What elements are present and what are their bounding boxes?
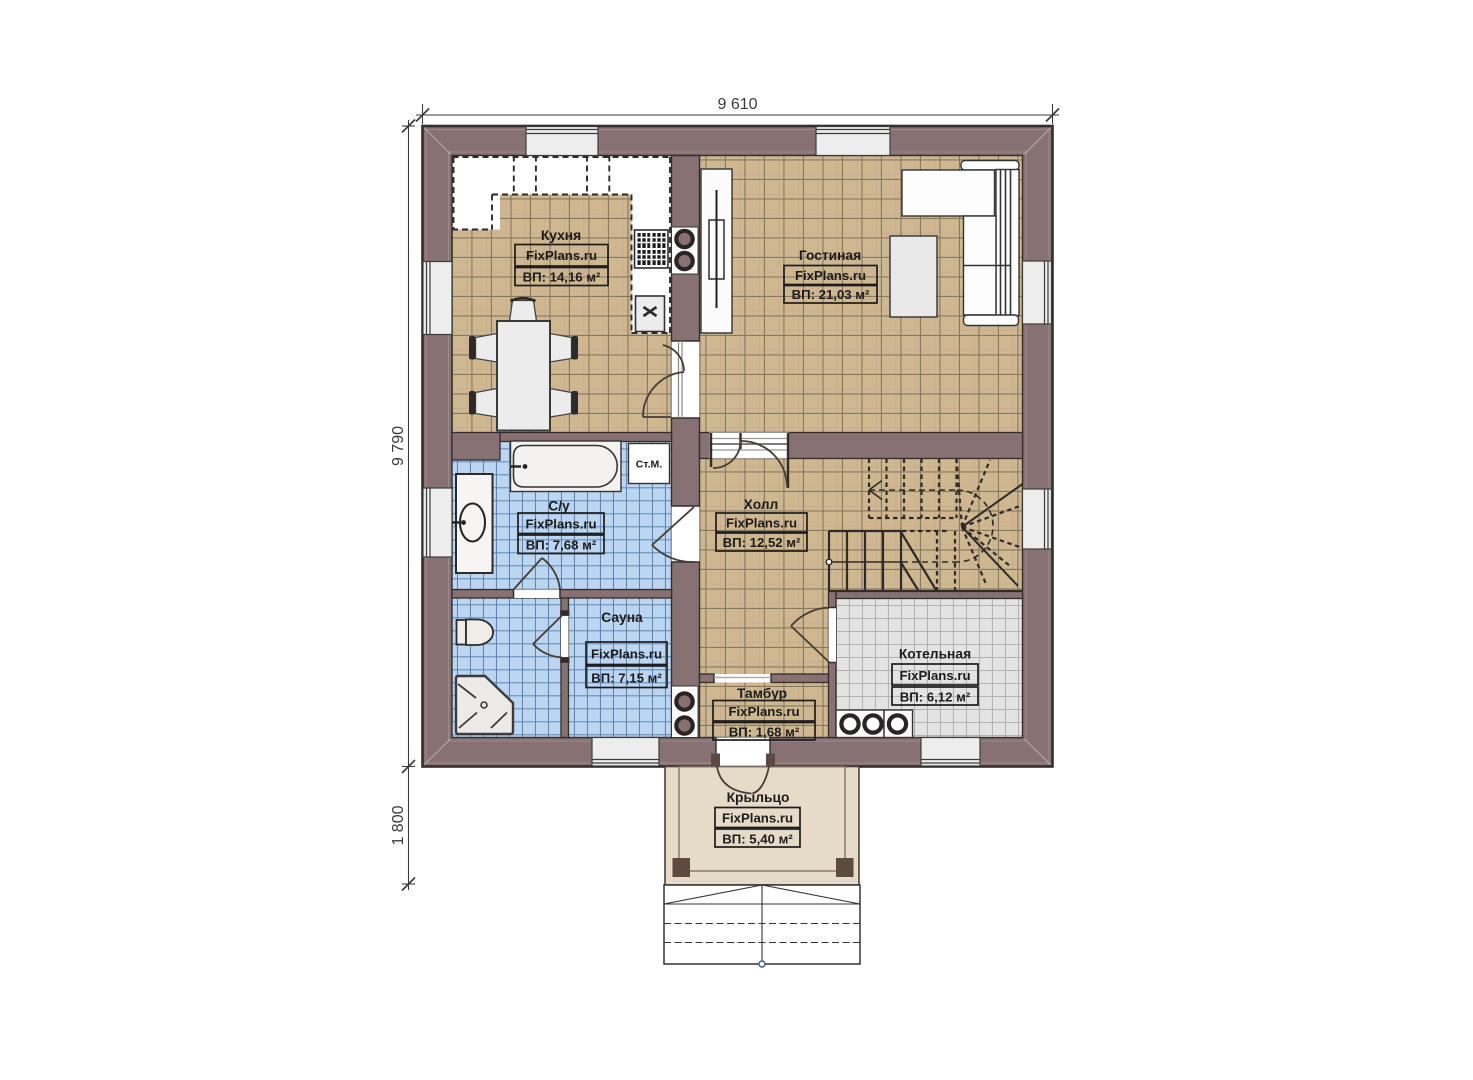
svg-text:ВП: 5,40 м²: ВП: 5,40 м² (722, 832, 793, 847)
svg-text:ВП: 7,15 м²: ВП: 7,15 м² (591, 671, 662, 686)
svg-text:Холл: Холл (744, 497, 779, 512)
svg-text:FixPlans.ru: FixPlans.ru (795, 268, 866, 283)
svg-text:ВП: 7,68 м²: ВП: 7,68 м² (526, 538, 597, 553)
svg-text:FixPlans.ru: FixPlans.ru (591, 647, 662, 662)
svg-text:ВП: 6,12 м²: ВП: 6,12 м² (900, 690, 971, 705)
svg-text:С/у: С/у (548, 499, 570, 514)
svg-text:Крыльцо: Крыльцо (727, 790, 790, 805)
svg-text:9 610: 9 610 (717, 96, 757, 113)
svg-text:Котельная: Котельная (899, 647, 971, 662)
svg-text:Сауна: Сауна (601, 610, 643, 625)
svg-text:9 790: 9 790 (390, 426, 407, 466)
svg-text:Кухня: Кухня (541, 228, 581, 243)
svg-text:Ст.М.: Ст.М. (636, 459, 662, 471)
svg-text:Гостиная: Гостиная (799, 248, 861, 263)
svg-text:FixPlans.ru: FixPlans.ru (525, 517, 596, 532)
svg-text:FixPlans.ru: FixPlans.ru (722, 811, 793, 826)
svg-text:ВП: 21,03 м²: ВП: 21,03 м² (792, 287, 870, 302)
svg-text:FixPlans.ru: FixPlans.ru (728, 704, 799, 719)
svg-text:FixPlans.ru: FixPlans.ru (899, 668, 970, 683)
svg-text:ВП: 12,52 м²: ВП: 12,52 м² (723, 535, 801, 550)
svg-text:ВП: 1,68 м²: ВП: 1,68 м² (729, 725, 800, 740)
svg-text:FixPlans.ru: FixPlans.ru (726, 516, 797, 531)
svg-text:Тамбур: Тамбур (737, 686, 787, 701)
svg-text:1 800: 1 800 (390, 805, 407, 845)
svg-text:FixPlans.ru: FixPlans.ru (526, 248, 597, 263)
svg-text:ВП: 14,16 м²: ВП: 14,16 м² (523, 270, 601, 285)
